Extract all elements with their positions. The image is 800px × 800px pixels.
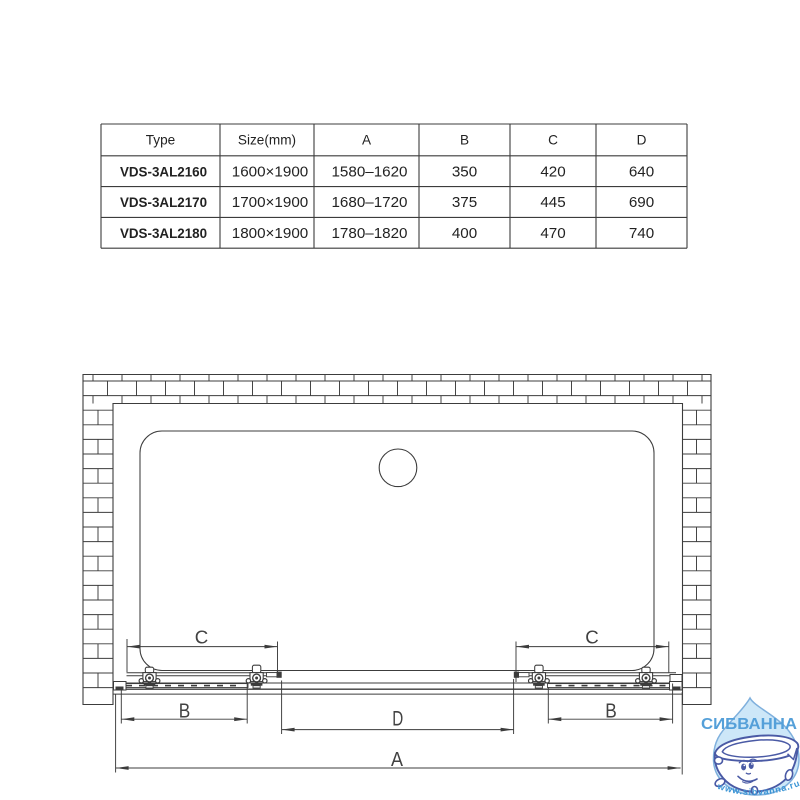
svg-text:1800×1900: 1800×1900: [232, 225, 308, 242]
svg-text:СИБВАННА: СИБВАННА: [701, 716, 797, 733]
svg-text:B: B: [605, 701, 617, 723]
svg-text:350: 350: [452, 163, 477, 180]
svg-text:VDS-3AL2170: VDS-3AL2170: [120, 195, 207, 210]
svg-text:1780–1820: 1780–1820: [331, 225, 407, 242]
svg-text:445: 445: [540, 194, 565, 211]
svg-text:1580–1620: 1580–1620: [331, 163, 407, 180]
svg-text:B: B: [179, 701, 191, 723]
svg-text:690: 690: [629, 194, 654, 211]
svg-text:A: A: [362, 133, 372, 148]
svg-text:400: 400: [452, 225, 477, 242]
svg-text:C: C: [195, 627, 209, 648]
svg-text:D: D: [637, 133, 647, 148]
svg-text:C: C: [548, 133, 558, 148]
svg-text:1680–1720: 1680–1720: [331, 194, 407, 211]
svg-text:C: C: [585, 627, 599, 648]
svg-text:420: 420: [540, 163, 565, 180]
svg-text:D: D: [392, 707, 403, 731]
svg-text:640: 640: [629, 163, 654, 180]
svg-text:B: B: [460, 133, 469, 148]
svg-text:1600×1900: 1600×1900: [232, 163, 308, 180]
svg-text:1700×1900: 1700×1900: [232, 194, 308, 211]
svg-text:470: 470: [540, 225, 565, 242]
svg-text:A: A: [391, 749, 404, 771]
svg-text:740: 740: [629, 225, 654, 242]
svg-text:VDS-3AL2160: VDS-3AL2160: [120, 164, 207, 179]
svg-text:Size(mm): Size(mm): [238, 133, 296, 148]
svg-text:Type: Type: [146, 133, 175, 148]
svg-text:VDS-3AL2180: VDS-3AL2180: [120, 226, 207, 241]
svg-text:375: 375: [452, 194, 477, 211]
